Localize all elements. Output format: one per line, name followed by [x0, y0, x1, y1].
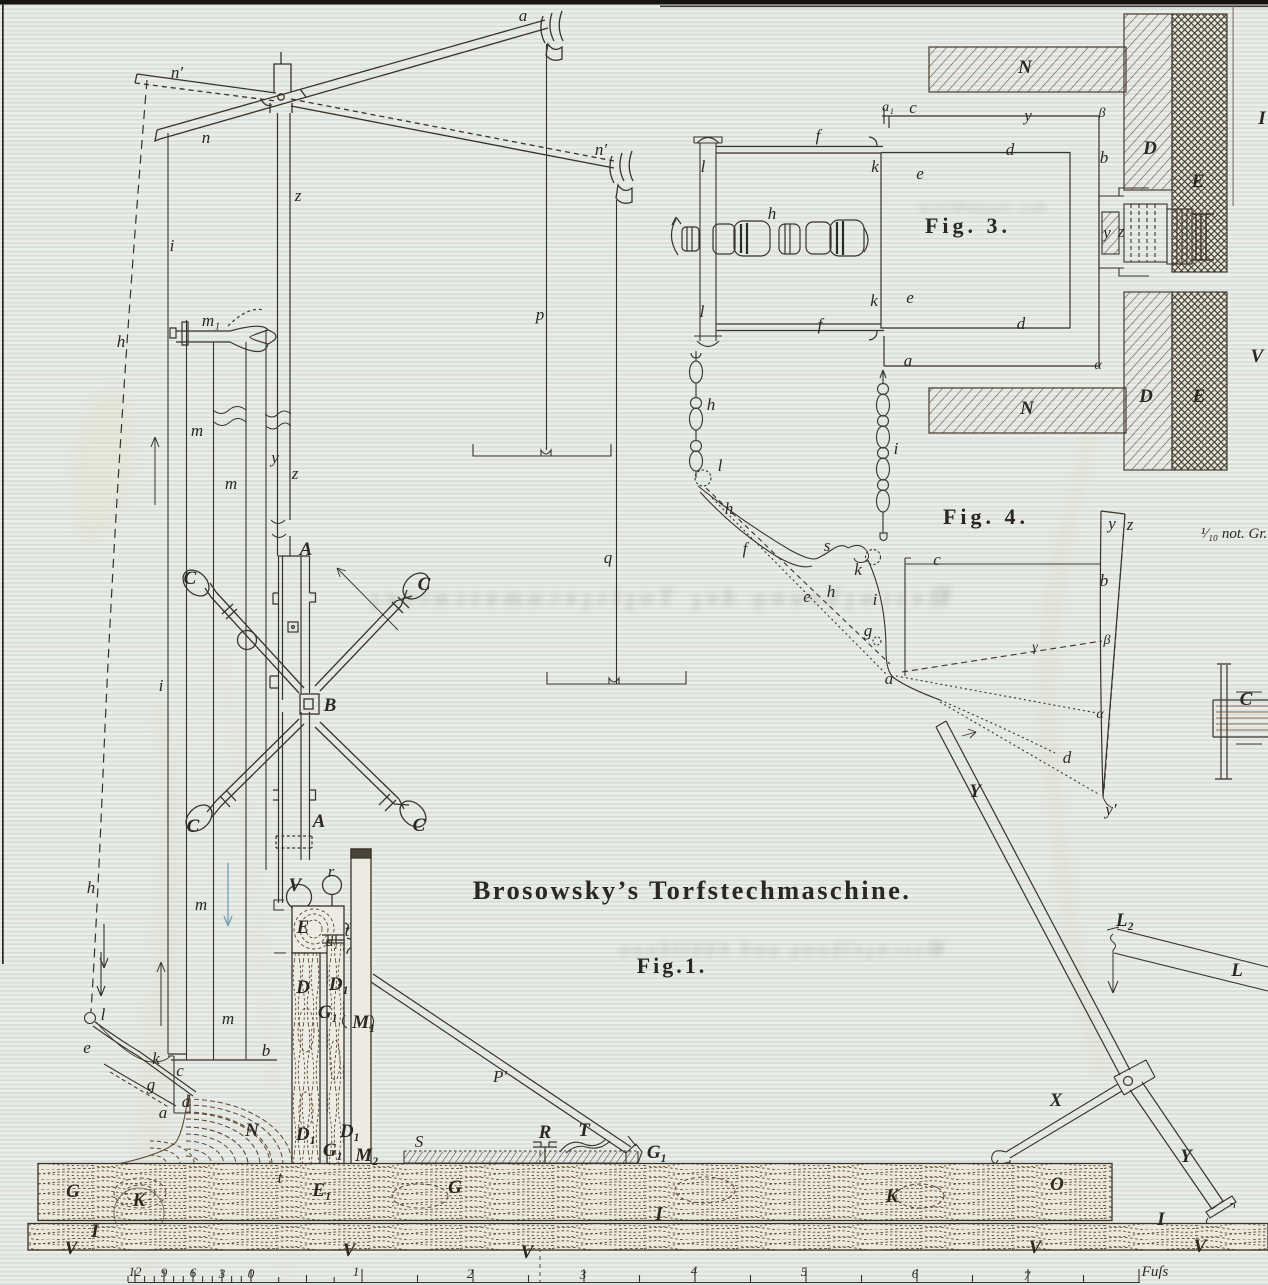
- svg-text:D: D: [1138, 386, 1153, 407]
- svg-text:d₁: d₁: [326, 935, 338, 950]
- svg-text:n′: n′: [595, 140, 608, 159]
- svg-text:a: a: [885, 669, 894, 688]
- svg-text:D₁: D₁: [339, 1121, 360, 1142]
- svg-text:z: z: [294, 186, 302, 205]
- svg-text:E: E: [1191, 171, 1205, 192]
- svg-text:0: 0: [248, 1266, 255, 1281]
- svg-text:q: q: [604, 548, 613, 567]
- svg-text:d: d: [182, 1092, 191, 1111]
- svg-text:c: c: [909, 98, 917, 117]
- svg-text:E: E: [296, 917, 310, 938]
- svg-text:m: m: [195, 895, 207, 914]
- svg-text:G: G: [448, 1177, 462, 1198]
- svg-text:V: V: [289, 875, 303, 896]
- svg-text:b: b: [1100, 148, 1109, 167]
- svg-text:y′: y′: [1103, 800, 1117, 819]
- svg-text:Fuſs: Fuſs: [1141, 1264, 1169, 1280]
- svg-text:g: g: [147, 1075, 156, 1094]
- svg-text:I: I: [1156, 1209, 1165, 1230]
- svg-text:A: A: [299, 539, 313, 560]
- svg-text:z: z: [1126, 515, 1134, 534]
- svg-text:¹⁄₁₀ not. Gr.: ¹⁄₁₀ not. Gr.: [1201, 526, 1268, 542]
- svg-text:P′: P′: [492, 1067, 507, 1086]
- svg-text:T: T: [578, 1120, 591, 1141]
- svg-text:l: l: [101, 1005, 106, 1024]
- svg-text:e: e: [906, 288, 914, 307]
- svg-text:f: f: [816, 126, 823, 145]
- svg-text:l: l: [700, 302, 705, 321]
- svg-text:d: d: [1063, 748, 1072, 767]
- svg-text:C: C: [413, 815, 426, 836]
- svg-text:Fig.1.: Fig.1.: [637, 953, 708, 978]
- svg-text:9: 9: [161, 1265, 168, 1280]
- svg-text:l: l: [701, 157, 706, 176]
- svg-text:Y: Y: [969, 781, 983, 802]
- svg-text:12: 12: [129, 1264, 143, 1279]
- svg-text:m₁: m₁: [202, 311, 220, 330]
- svg-text:m: m: [191, 421, 203, 440]
- svg-text:K: K: [885, 1186, 900, 1207]
- svg-text:c: c: [933, 550, 941, 569]
- svg-text:5: 5: [801, 1264, 808, 1279]
- svg-text:I: I: [654, 1204, 663, 1225]
- svg-text:1: 1: [353, 1264, 360, 1279]
- svg-text:y: y: [269, 448, 279, 467]
- svg-text:D₁: D₁: [328, 974, 349, 995]
- svg-text:e: e: [916, 164, 924, 183]
- svg-text:Brosowsky’s Torfstechmaschine.: Brosowsky’s Torfstechmaschine.: [473, 875, 912, 905]
- svg-text:ɿɘniʜɔƨɒmʜɔɘɿƨʇɿoT ɿɘb ǫnuɘdɿʜ: ɿɘniʜɔƨɒmʜɔɘɿƨʇɿoT ɿɘb ǫnuɘdɿʜɔƨɘᙠ: [370, 585, 954, 611]
- svg-text:2: 2: [467, 1266, 474, 1281]
- svg-text:Fig. 4.: Fig. 4.: [943, 504, 1029, 529]
- svg-text:h: h: [117, 332, 126, 351]
- svg-text:C: C: [187, 816, 200, 837]
- svg-text:α: α: [1096, 707, 1104, 722]
- svg-text:M₂: M₂: [354, 1145, 379, 1166]
- svg-text:O: O: [1050, 1174, 1064, 1195]
- svg-text:h: h: [707, 395, 716, 414]
- svg-text:i: i: [873, 590, 878, 609]
- svg-text:D: D: [295, 977, 310, 998]
- svg-text:h: h: [768, 204, 777, 223]
- svg-text:a₁: a₁: [882, 100, 894, 115]
- svg-text:7: 7: [1024, 1268, 1031, 1283]
- svg-text:y: y: [1022, 106, 1032, 125]
- svg-text:C: C: [184, 568, 197, 589]
- svg-text:n′: n′: [171, 63, 184, 82]
- svg-text:V: V: [343, 1240, 357, 1261]
- svg-text:G₁: G₁: [647, 1142, 667, 1163]
- svg-text:k: k: [870, 291, 878, 310]
- svg-text:α: α: [1094, 358, 1102, 373]
- svg-text:i: i: [894, 439, 899, 458]
- svg-text:h: h: [827, 582, 836, 601]
- svg-text:V: V: [521, 1242, 535, 1263]
- svg-text:γ: γ: [1032, 640, 1038, 655]
- svg-text:a: a: [159, 1103, 168, 1122]
- svg-text:g: g: [864, 621, 873, 640]
- svg-text:y: y: [1101, 223, 1111, 242]
- svg-text:L: L: [1230, 960, 1243, 981]
- svg-text:d: d: [1006, 140, 1015, 159]
- svg-text:D: D: [1142, 138, 1157, 159]
- svg-text:h: h: [725, 499, 734, 518]
- svg-text:f: f: [743, 539, 750, 558]
- svg-text:C: C: [418, 574, 431, 595]
- svg-text:R: R: [538, 1122, 552, 1143]
- svg-text:p: p: [535, 305, 545, 324]
- svg-text:z: z: [1117, 222, 1125, 241]
- svg-text:V: V: [1251, 346, 1265, 367]
- svg-text:G₁: G₁: [323, 1140, 343, 1161]
- svg-text:β: β: [1103, 633, 1111, 648]
- svg-text:V: V: [65, 1238, 79, 1259]
- svg-text:X: X: [1049, 1090, 1064, 1111]
- svg-text:i: i: [170, 236, 175, 255]
- svg-text:I: I: [1257, 108, 1266, 129]
- svg-text:e: e: [83, 1038, 91, 1057]
- svg-text:a: a: [519, 6, 528, 25]
- svg-text:n: n: [202, 128, 211, 147]
- svg-text:s: s: [824, 536, 831, 555]
- svg-text:z: z: [291, 464, 299, 483]
- svg-text:c: c: [176, 1061, 184, 1080]
- svg-text:D₁: D₁: [295, 1124, 316, 1145]
- svg-text:i: i: [159, 676, 164, 695]
- svg-text:d: d: [1017, 314, 1026, 333]
- svg-text:N: N: [244, 1120, 260, 1141]
- svg-text:a: a: [904, 351, 913, 370]
- svg-text:m: m: [225, 474, 237, 493]
- svg-text:e: e: [803, 587, 811, 606]
- svg-text:S: S: [415, 1132, 424, 1151]
- svg-text:N: N: [1019, 398, 1035, 419]
- svg-text:k: k: [871, 157, 879, 176]
- svg-text:b: b: [1100, 571, 1109, 590]
- svg-text:b: b: [262, 1041, 271, 1060]
- svg-text:G₁: G₁: [318, 1002, 338, 1023]
- svg-text:B: B: [323, 695, 337, 716]
- svg-text:E: E: [1192, 386, 1206, 407]
- svg-text:6: 6: [190, 1265, 197, 1280]
- svg-text:K: K: [132, 1190, 147, 1211]
- svg-text:l: l: [718, 456, 723, 475]
- svg-text:L₂: L₂: [1115, 910, 1134, 931]
- svg-text:Fig. 3.: Fig. 3.: [925, 213, 1011, 238]
- svg-text:4: 4: [691, 1263, 698, 1278]
- svg-text:k: k: [152, 1049, 160, 1068]
- svg-text:h: h: [87, 878, 96, 897]
- svg-text:β: β: [1098, 106, 1106, 121]
- svg-text:t: t: [345, 921, 351, 940]
- svg-text:N: N: [1017, 57, 1033, 78]
- svg-text:V: V: [1029, 1237, 1043, 1258]
- svg-text:m: m: [222, 1009, 234, 1028]
- svg-text:E₁: E₁: [311, 1180, 331, 1201]
- svg-text:V: V: [1194, 1236, 1208, 1257]
- svg-text:3: 3: [218, 1266, 226, 1281]
- svg-text:C: C: [1240, 689, 1253, 710]
- svg-text:3: 3: [579, 1267, 587, 1282]
- svg-text:r: r: [328, 862, 335, 881]
- svg-text:k: k: [854, 560, 862, 579]
- svg-text:y: y: [1106, 514, 1116, 533]
- svg-text:G: G: [66, 1181, 80, 1202]
- svg-text:M₁: M₁: [351, 1012, 376, 1033]
- svg-text:A: A: [312, 811, 326, 832]
- svg-text:I: I: [90, 1221, 99, 1242]
- svg-text:6: 6: [912, 1266, 919, 1281]
